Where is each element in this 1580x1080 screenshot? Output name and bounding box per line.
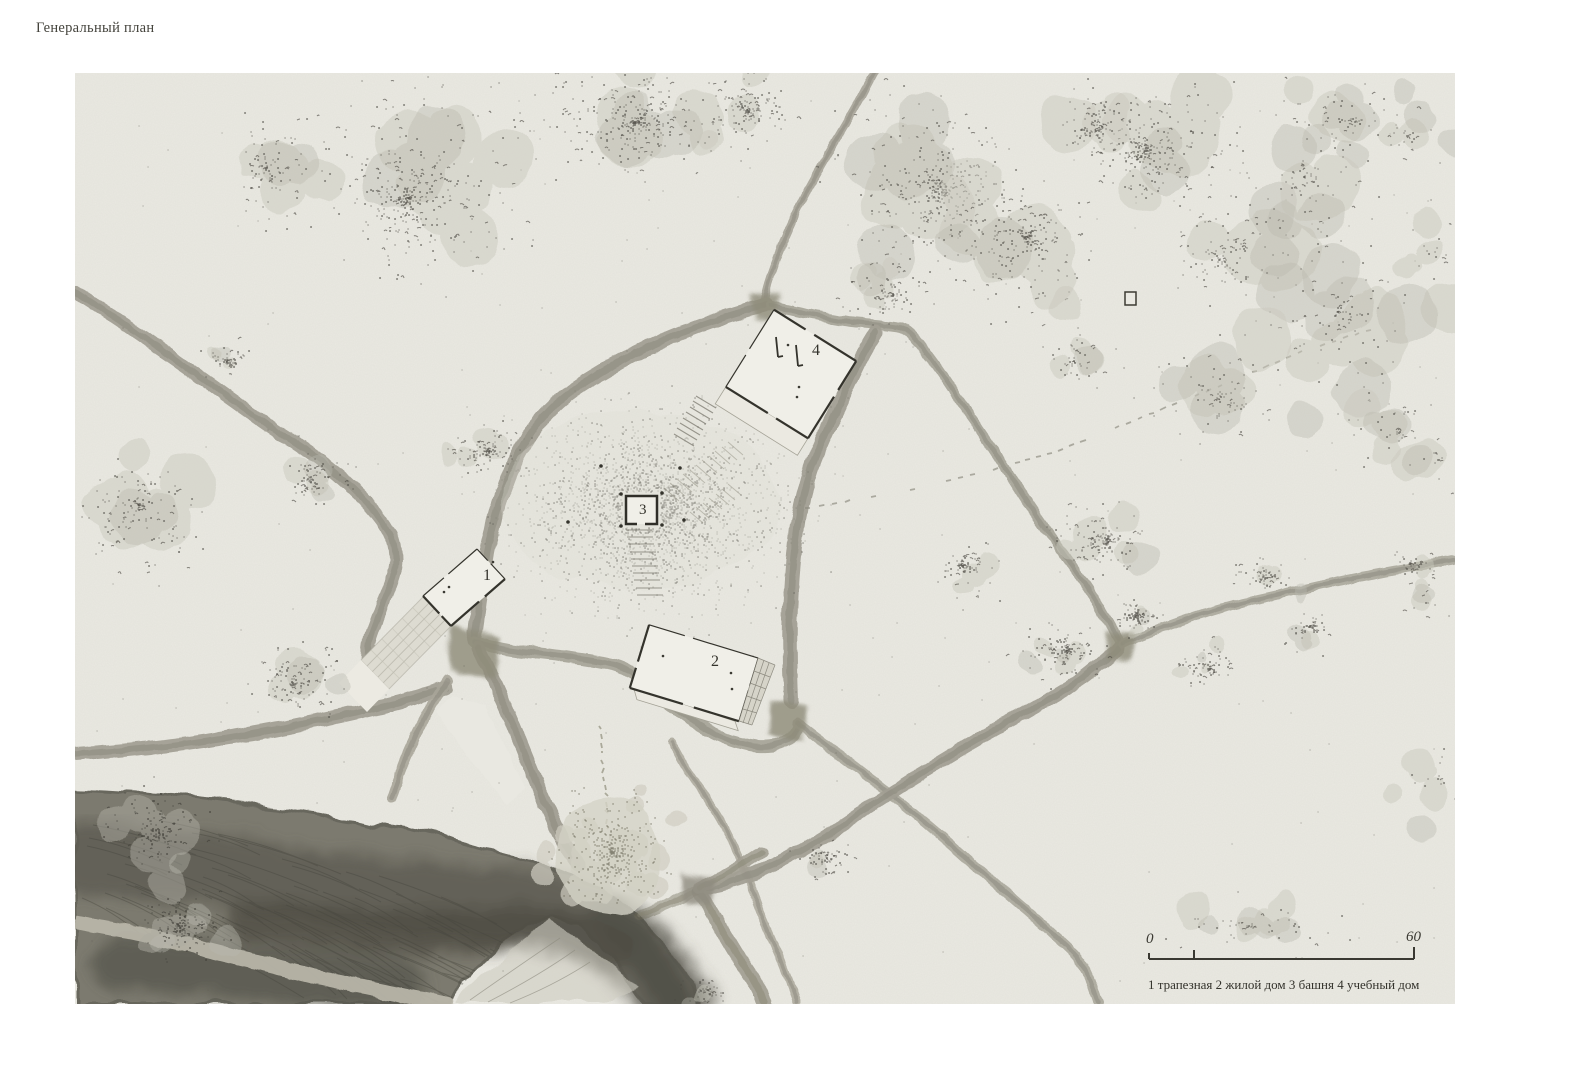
svg-text:1: 1: [483, 567, 491, 584]
svg-text:0: 0: [1146, 931, 1154, 947]
svg-text:3: 3: [639, 502, 647, 518]
svg-text:4: 4: [812, 342, 820, 359]
svg-text:2: 2: [711, 653, 719, 670]
svg-text:60: 60: [1406, 929, 1422, 945]
svg-text:1 трапезная 2 жилой дом 3 башн: 1 трапезная 2 жилой дом 3 башня 4 учебны…: [1148, 977, 1419, 992]
